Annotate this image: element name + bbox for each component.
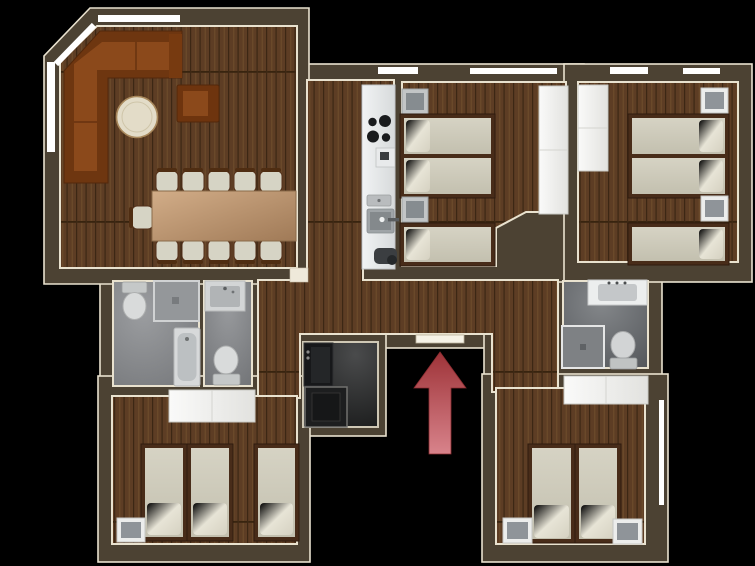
chair (208, 240, 230, 261)
entry-door (416, 335, 464, 343)
pillow (193, 503, 227, 535)
pillow (699, 160, 723, 192)
round-table (117, 97, 158, 138)
toilet-tank (213, 374, 240, 385)
window-top-3 (610, 67, 648, 74)
shower-drain (172, 297, 179, 304)
pillow (534, 505, 569, 538)
pillow (260, 503, 293, 535)
faucet (223, 287, 227, 291)
chair (208, 171, 230, 192)
chair (182, 171, 204, 192)
window-living-left (47, 62, 55, 152)
floor-plan-stage (0, 0, 755, 566)
burner (379, 115, 391, 127)
chair (132, 206, 153, 229)
chair (234, 240, 256, 261)
pillow (699, 120, 723, 152)
chair (260, 171, 282, 192)
armchair-seat (183, 91, 208, 116)
shower-drain (580, 344, 586, 350)
window-top-1 (378, 67, 418, 74)
dining-table (152, 191, 296, 241)
chair (156, 240, 178, 261)
chair (182, 240, 204, 261)
floor-plan (0, 0, 755, 566)
toilet-tank (610, 358, 637, 369)
faucet (388, 218, 399, 221)
toilet (611, 332, 635, 359)
toilet-tank (122, 282, 147, 293)
pillow (406, 229, 430, 260)
door-living-hall (290, 268, 308, 282)
burner (382, 133, 390, 141)
chair (156, 171, 178, 192)
burner (368, 118, 376, 126)
washbasin (598, 284, 637, 301)
pillow (581, 505, 615, 538)
toilet (123, 293, 146, 320)
tub-faucet (185, 337, 189, 341)
faucet (616, 282, 619, 285)
kitchen-counter (362, 85, 395, 269)
pillow (699, 229, 723, 259)
toilet (214, 346, 238, 374)
burner (367, 131, 379, 143)
chair (260, 240, 282, 261)
pillow (406, 120, 430, 152)
pillow (147, 503, 181, 535)
window-bedroom-br-right (659, 400, 664, 505)
pillow (406, 160, 430, 192)
chair (234, 171, 256, 192)
window-top-2 (470, 68, 557, 74)
entrance-arrow (414, 352, 466, 454)
kitchen (362, 85, 399, 269)
window-living-top (98, 15, 180, 22)
window-top-4 (683, 68, 720, 74)
